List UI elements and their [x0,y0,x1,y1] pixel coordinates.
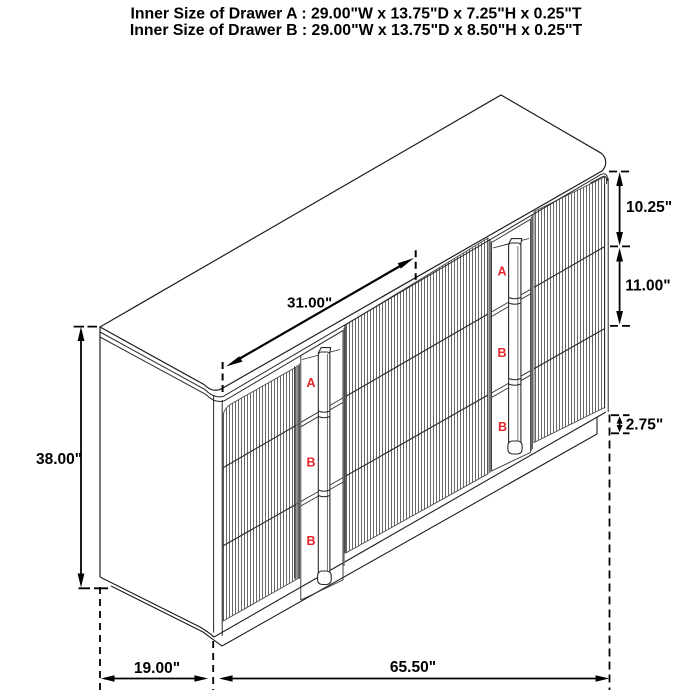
svg-text:A: A [307,376,316,390]
svg-text:10.25": 10.25" [626,199,672,216]
svg-text:65.50": 65.50" [390,659,436,676]
svg-text:B: B [307,456,316,470]
svg-text:11.00": 11.00" [625,278,670,295]
svg-text:38.00": 38.00" [36,451,82,468]
svg-text:A: A [498,265,507,279]
svg-text:B: B [498,346,507,360]
svg-text:31.00": 31.00" [287,295,332,312]
svg-text:19.00": 19.00" [134,660,180,677]
svg-text:2.75": 2.75" [626,417,664,434]
svg-text:Inner Size of Drawer B : 29.00: Inner Size of Drawer B : 29.00"W x 13.75… [130,22,583,39]
svg-text:Inner Size of Drawer A : 29.00: Inner Size of Drawer A : 29.00"W x 13.75… [130,6,581,23]
svg-text:B: B [307,534,316,548]
svg-text:B: B [498,420,507,434]
